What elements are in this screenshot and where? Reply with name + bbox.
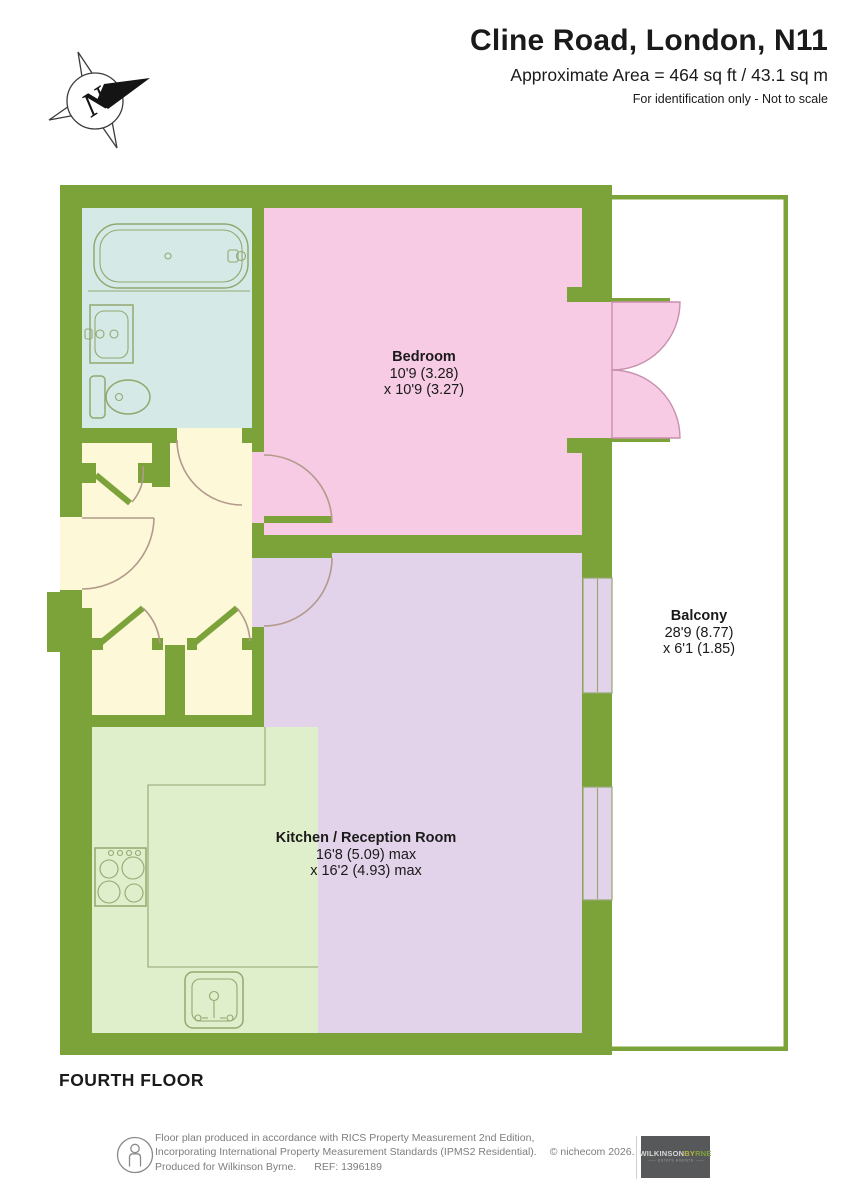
floor-label: FOURTH FLOOR (59, 1070, 204, 1091)
person-icon (118, 1138, 153, 1173)
bedroom-label: Bedroom 10'9 (3.28) x 10'9 (3.27) (384, 349, 464, 399)
bathroom-floor (82, 208, 252, 428)
reception-door-opening (252, 558, 264, 627)
closet1-stub-b (152, 638, 163, 650)
bedroom-door-opening (252, 452, 264, 523)
left-wall-protrusion (47, 592, 60, 652)
wilkinson-byrne-logo: WILKINSONBYRNE ESTATE AGENTS (641, 1136, 710, 1178)
room-name: Balcony (663, 608, 735, 625)
header: Cline Road, London, N11 Approximate Area… (470, 24, 828, 106)
compass-icon: N (49, 52, 150, 148)
bathroom-door-opening (177, 428, 242, 443)
footer-ref: REF: 1396189 (314, 1161, 382, 1173)
room-name: Kitchen / Reception Room (276, 830, 456, 847)
room-name: Bedroom (384, 349, 464, 366)
room-dim2: x 6'1 (1.85) (663, 641, 735, 658)
logo-wilkinson: WILKINSON (640, 1149, 685, 1158)
logo-rne: RNE (695, 1149, 711, 1158)
floor-plan-svg: N (0, 0, 849, 1200)
footer-copyright: © nichecom 2026. (550, 1146, 635, 1158)
footer-line2: Incorporating International Property Mea… (155, 1145, 635, 1159)
kitchen-reception-label: Kitchen / Reception Room 16'8 (5.09) max… (276, 830, 456, 880)
room-dim2: x 16'2 (4.93) max (276, 863, 456, 880)
footer-separator (636, 1136, 637, 1179)
footer-line2-text: Incorporating International Property Mea… (155, 1146, 537, 1158)
tl-closet-stub-b (138, 463, 152, 483)
tl-closet-wall (152, 443, 170, 487)
logo-tagline: ESTATE AGENTS (648, 1159, 703, 1163)
page-title: Cline Road, London, N11 (470, 24, 828, 58)
footer-line1: Floor plan produced in accordance with R… (155, 1131, 635, 1145)
tl-closet-stub-a (82, 463, 96, 483)
scale-disclaimer: For identification only - Not to scale (470, 92, 828, 106)
footer-disclaimer: Floor plan produced in accordance with R… (155, 1131, 635, 1174)
kitchen-floor (92, 727, 318, 1033)
logo-by: BY (684, 1149, 695, 1158)
closet-gap-floor (165, 608, 185, 645)
logo-wordmark: WILKINSONBYRNE (640, 1149, 712, 1158)
footer-produced-for: Produced for Wilkinson Byrne. (155, 1161, 296, 1173)
floorplan-page: { "header": { "title": "Cline Road, Lond… (0, 0, 849, 1200)
footer-line3: Produced for Wilkinson Byrne.REF: 139618… (155, 1160, 635, 1174)
balcony-label: Balcony 28'9 (8.77) x 6'1 (1.85) (663, 608, 735, 658)
room-dim1: 10'9 (3.28) (384, 366, 464, 383)
room-dim1: 28'9 (8.77) (663, 625, 735, 642)
front-door-opening (60, 517, 82, 590)
room-dim1: 16'8 (5.09) max (276, 847, 456, 864)
approximate-area: Approximate Area = 464 sq ft / 43.1 sq m (470, 65, 828, 86)
closet-divider-wall (165, 645, 185, 715)
room-dim2: x 10'9 (3.27) (384, 382, 464, 399)
